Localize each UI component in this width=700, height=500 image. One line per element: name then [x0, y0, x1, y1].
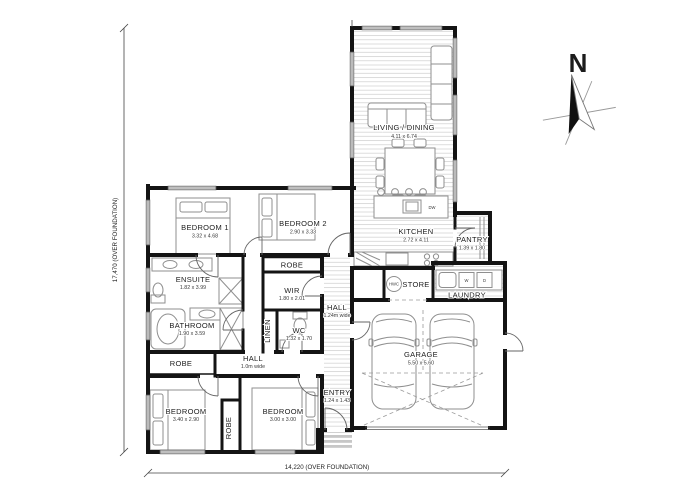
wc-label: WC: [292, 326, 305, 335]
dimension-bottom: 14,220 (OVER FOUNDATION): [144, 464, 509, 477]
ensuite-size: 1.82 x 3.99: [180, 285, 206, 291]
pantry-size: 1.39 x 1.80: [459, 246, 485, 252]
living-room-label: LIVING / DINING: [373, 123, 435, 132]
bathroom-size: 1.90 x 3.59: [179, 331, 205, 337]
north-compass-icon: N: [536, 48, 621, 148]
dimension-bottom-text: 14,220 (OVER FOUNDATION): [285, 464, 369, 471]
laundry-bench-icon: [436, 270, 502, 290]
door-icon: [352, 322, 370, 340]
garage-label: GARAGE: [404, 350, 438, 359]
hall-garage-label: HALL: [327, 303, 347, 312]
dishwasher-label: DW: [429, 205, 436, 210]
wir-label: WIR: [284, 286, 300, 295]
dining-table-icon: [376, 139, 444, 203]
entry-label: ENTRY: [324, 388, 351, 397]
car-icon: [427, 314, 477, 409]
door-icon: [328, 233, 350, 255]
north-label: N: [569, 48, 588, 78]
door-icon: [282, 332, 302, 352]
living-room-size: 4.11 x 6.74: [391, 134, 417, 140]
bedroom3-size: 3.40 x 2.90: [173, 417, 199, 423]
hall-main-label: HALL: [243, 354, 263, 363]
hwc-label: HWC: [389, 282, 399, 287]
laundry-label: LAUNDRY: [448, 291, 486, 300]
garage-door-icon: [365, 427, 490, 430]
bedroom3-label: BEDROOM: [166, 407, 207, 416]
ensuite-label: ENSUITE: [176, 275, 211, 284]
robe-bed2-label: ROBE: [281, 261, 303, 270]
robe-hall-label: ROBE: [170, 359, 192, 368]
door-icon: [505, 333, 523, 351]
floor-plan-drawing: LIVING / DINING 4.11 x 6.74 KITCHEN 2.72…: [0, 0, 700, 500]
hall-main-size: 1.0m wide: [241, 364, 265, 370]
kitchen-size: 2.72 x 4.11: [403, 238, 429, 244]
wir-size: 1.80 x 2.01: [279, 296, 305, 302]
robe-beds-label: ROBE: [224, 417, 233, 439]
dimension-left-text: 17,470 (OVER FOUNDATION): [112, 198, 119, 282]
washer-label: W: [465, 278, 469, 283]
entry-size: 1.24 x 1.43: [324, 398, 350, 404]
l-sofa-icon: [431, 46, 452, 120]
store-label: STORE: [402, 280, 429, 289]
bedroom4-label: BEDROOM: [263, 407, 304, 416]
pantry-label: PANTRY: [456, 235, 488, 244]
bedroom2-label: BEDROOM 2: [279, 219, 327, 228]
door-icon: [302, 276, 322, 296]
hall-garage-size: 1.24m wide: [323, 313, 350, 319]
wc-size: 1.32 x 1.70: [286, 336, 312, 342]
bedroom2-size: 2.90 x 3.33: [290, 230, 316, 236]
kitchen-label: KITCHEN: [398, 227, 433, 236]
linen-label: LINEN: [263, 319, 272, 343]
floor-plan-page: LIVING / DINING 4.11 x 6.74 KITCHEN 2.72…: [0, 0, 700, 500]
dryer-label: D: [483, 278, 486, 283]
dimension-left: 17,470 (OVER FOUNDATION): [112, 24, 128, 456]
bedroom1-size: 3.32 x 4.68: [192, 234, 218, 240]
garage-size: 5.50 x 5.60: [408, 361, 434, 367]
bedroom4-size: 3.00 x 3.00: [270, 417, 296, 423]
bathroom-label: BATHROOM: [169, 321, 214, 330]
bedroom1-label: BEDROOM 1: [181, 223, 229, 232]
